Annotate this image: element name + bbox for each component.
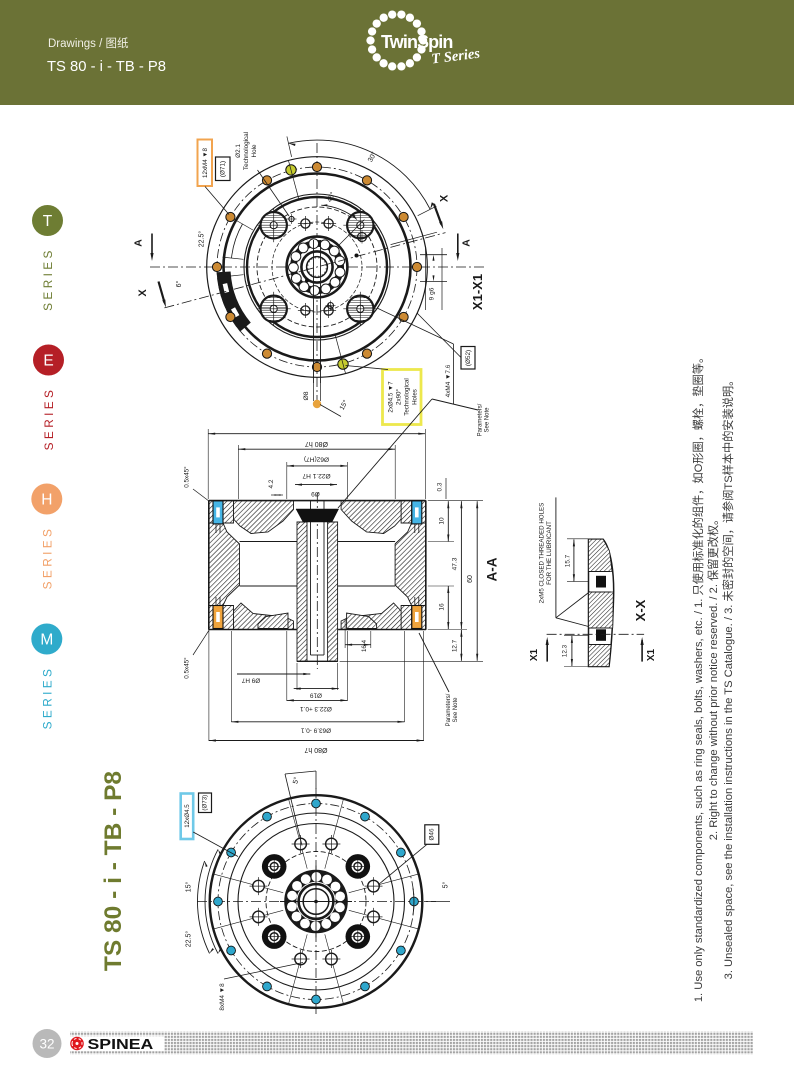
svg-text:H: H [41,492,52,509]
svg-text:Ø80 h7: Ø80 h7 [305,440,328,447]
svg-text:Ø62(H7): Ø62(H7) [304,456,329,463]
svg-text:5°: 5° [442,881,450,888]
svg-text:8xM4 ▼8: 8xM4 ▼8 [219,983,226,1011]
svg-text:(Ø73): (Ø73) [202,795,209,811]
svg-text:X1: X1 [529,648,540,661]
svg-text:Hole: Hole [251,144,258,157]
svg-text:Ø19: Ø19 [310,692,323,699]
svg-text:22.5°: 22.5° [185,931,193,948]
svg-text:Holes: Holes [412,389,419,405]
svg-text:2. Right to change without pri: 2. Right to change without prior notice … [706,514,720,840]
svg-text:Ø63.9 -0.1: Ø63.9 -0.1 [300,726,331,733]
svg-text:2xØ4.5 ▼7: 2xØ4.5 ▼7 [388,381,395,413]
svg-text:X1-X1: X1-X1 [470,274,485,310]
svg-text:Drawings / 图纸: Drawings / 图纸 [48,37,129,50]
svg-text:2x90°: 2x90° [396,389,403,405]
svg-text:12xØ4.5: 12xØ4.5 [184,804,191,828]
svg-text:TS 80 - i - TB - P8: TS 80 - i - TB - P8 [100,771,127,971]
svg-text:0.5x45°: 0.5x45° [183,466,191,488]
svg-text:4.2: 4.2 [268,479,275,488]
svg-text:Ø80 h7: Ø80 h7 [304,746,327,753]
svg-text:32: 32 [39,1037,54,1052]
svg-text:Technological: Technological [404,378,411,416]
svg-text:T: T [43,213,53,230]
svg-text:SERIES: SERIES [41,247,55,311]
svg-text:Technological: Technological [243,132,250,170]
svg-text:A: A [461,239,473,247]
svg-text:12.3: 12.3 [562,644,569,657]
svg-text:Ø9: Ø9 [311,490,320,497]
svg-text:X1: X1 [646,648,657,661]
svg-text:16.4: 16.4 [361,639,368,652]
svg-text:Ø22.3 +0.1: Ø22.3 +0.1 [300,705,332,712]
svg-text:60: 60 [467,575,474,583]
svg-text:SERIES: SERIES [40,526,54,590]
svg-text:22.5°: 22.5° [198,231,206,248]
svg-text:(Ø71): (Ø71) [220,161,227,177]
svg-text:(Ø52): (Ø52) [465,350,472,366]
svg-text:Ø46: Ø46 [429,828,436,841]
svg-text:X: X [439,194,451,202]
svg-text:M: M [40,632,53,649]
svg-text:A: A [133,239,145,247]
svg-text:0.5x45°: 0.5x45° [183,657,191,679]
svg-text:16: 16 [439,603,446,611]
svg-text:See Note: See Note [485,407,491,433]
svg-text:SERIES: SERIES [42,387,56,451]
svg-text:A-A: A-A [485,557,500,581]
svg-text:Ø9 H7: Ø9 H7 [241,677,260,684]
svg-text:3. Unsealed space, see the ins: 3. Unsealed space, see the installation … [721,375,735,980]
svg-text:SPINEA: SPINEA [88,1036,154,1052]
svg-text:See Note: See Note [453,697,459,723]
svg-text:6°: 6° [175,280,183,287]
svg-text:TwinSpin: TwinSpin [381,32,452,52]
svg-text:0.3: 0.3 [437,482,444,491]
svg-text:X: X [137,289,149,297]
svg-text:15°: 15° [185,882,193,893]
svg-text:2xM5 CLOSED THREADED HOLES: 2xM5 CLOSED THREADED HOLES [539,503,546,604]
svg-text:12.7: 12.7 [452,639,459,652]
svg-text:Parameters/: Parameters/ [478,403,484,436]
svg-text:9 g6: 9 g6 [429,287,436,300]
svg-text:1. Use only standardized compo: 1. Use only standardized components, suc… [691,352,705,1002]
svg-text:12xM4 ▼8: 12xM4 ▼8 [202,148,209,178]
svg-text:Ø2.1: Ø2.1 [235,144,242,158]
svg-text:Parameters/: Parameters/ [446,693,452,726]
svg-text:TS 80 - i - TB - P8: TS 80 - i - TB - P8 [47,59,166,75]
svg-text:E: E [43,353,53,370]
svg-text:Ø22.1 H7: Ø22.1 H7 [302,472,331,479]
svg-text:SERIES: SERIES [40,666,54,730]
svg-text:15.7: 15.7 [565,554,572,567]
svg-text:Ø8: Ø8 [303,391,310,400]
svg-text:10: 10 [439,517,446,525]
svg-text:47.3: 47.3 [452,557,459,570]
svg-text:FOR THE LUBRICANT: FOR THE LUBRICANT [546,521,553,585]
svg-text:X-X: X-X [633,599,648,621]
svg-text:4xM4 ▼7.6: 4xM4 ▼7.6 [445,364,452,397]
